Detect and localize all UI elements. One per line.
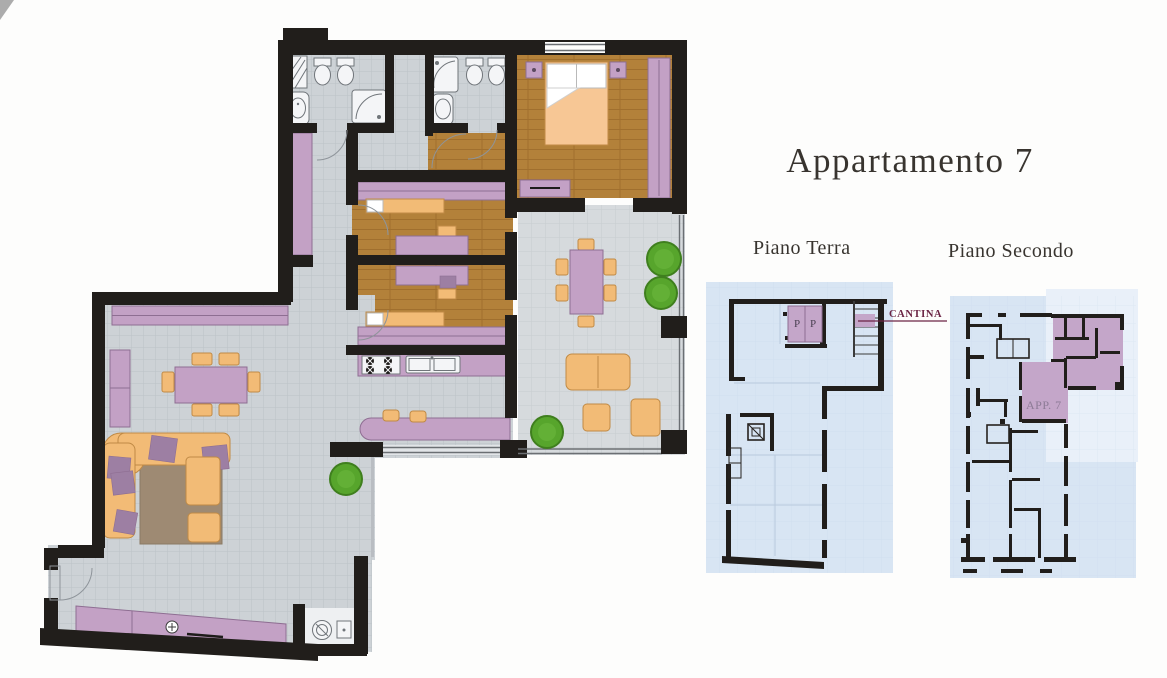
terrace-pillar [661, 316, 687, 338]
parking-letter-left: P [794, 318, 800, 330]
scanned-floorplan-page: Appartamento 7 Piano Terra Piano Secondo [0, 0, 1167, 678]
bidet-bowl [489, 65, 505, 85]
side-table [438, 226, 456, 236]
desk [396, 266, 468, 285]
piano-secondo-plan: APP. 7 [950, 289, 1138, 578]
terrace-pillar [661, 430, 687, 454]
outdoor-chair [604, 285, 616, 301]
bidet-bowl [338, 65, 354, 85]
sofa-cushion [148, 435, 177, 462]
dining-chair [162, 372, 174, 392]
parking-letter-right: P [810, 318, 816, 330]
ottoman-small [188, 513, 220, 542]
stair-edge [853, 301, 855, 357]
ottoman-large [186, 457, 220, 505]
sink-bowl [436, 99, 451, 119]
outdoor-table [570, 250, 603, 314]
shower-tray [431, 57, 458, 92]
outdoor-pouf [631, 399, 660, 436]
main-floor-plan [40, 28, 687, 661]
bedroom-window-gap [545, 42, 605, 53]
side-table [438, 289, 456, 299]
outdoor-chair [556, 259, 568, 275]
bar-counter [360, 418, 510, 440]
bed-pillow [367, 313, 383, 325]
plant-icon [330, 463, 362, 495]
lamp-icon [532, 68, 536, 72]
piano-terra-plan: P P CANTINA [706, 282, 947, 573]
shower-drain [377, 115, 381, 119]
faucet [431, 357, 434, 360]
bar-stool [383, 410, 399, 421]
outdoor-chair [578, 239, 594, 250]
terrace-pillar [672, 198, 687, 214]
dining-chair [219, 353, 239, 365]
desk-chair [440, 276, 456, 288]
outdoor-chair [578, 316, 594, 327]
dining-chair [219, 404, 239, 416]
sofa-cushion [113, 509, 138, 534]
shower-drain [435, 61, 439, 65]
kitchen-window-band [383, 445, 500, 455]
sofa-cushion [111, 471, 136, 496]
sink-drain [343, 629, 346, 632]
plant-icon [645, 277, 677, 309]
outdoor-chair [604, 259, 616, 275]
bar-stool [410, 411, 426, 422]
scan-smudge [0, 0, 14, 20]
shower-tray [352, 90, 386, 123]
sink-drain [297, 103, 299, 105]
toilet-bowl [315, 65, 331, 85]
floor-plans-drawing: P P CANTINA [0, 0, 1167, 678]
outdoor-chair [556, 285, 568, 301]
dining-chair [192, 404, 212, 416]
toilet-bowl [467, 65, 483, 85]
parking-spots: P P [788, 306, 822, 342]
apartment-7-label: APP. 7 [1026, 398, 1062, 412]
outdoor-pouf [583, 404, 610, 431]
living-room-floor [95, 295, 375, 560]
dining-table [175, 367, 247, 403]
plant-icon [531, 416, 563, 448]
plant-icon [647, 242, 681, 276]
cantina-label: CANTINA [889, 309, 942, 320]
living-window-wall [371, 457, 374, 557]
dining-chair [192, 353, 212, 365]
desk [396, 236, 468, 255]
dining-chair [248, 372, 260, 392]
lamp-icon [616, 68, 620, 72]
